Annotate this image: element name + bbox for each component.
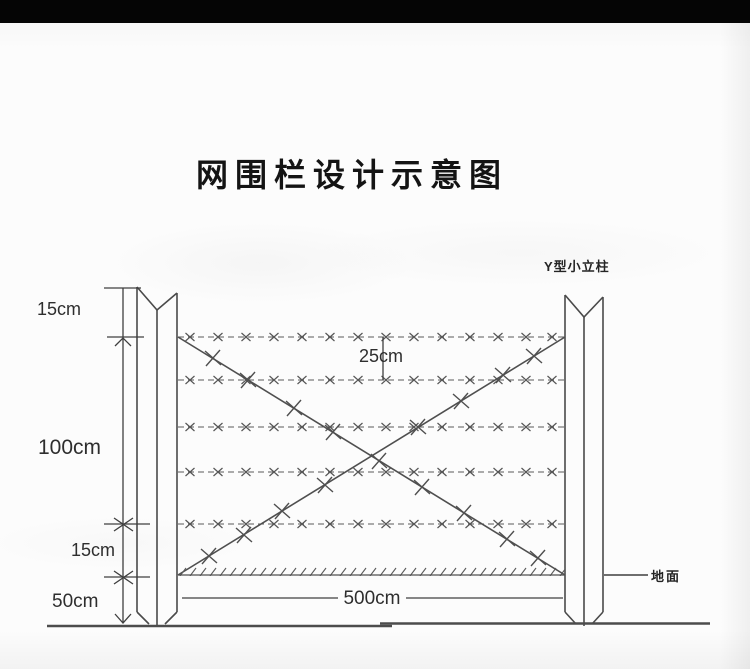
dim-label-wire-gap: 25cm [359,346,403,367]
ground-surface-line [178,567,648,576]
right-post-y-top [565,295,603,317]
post-type-label: Y型小立柱 [544,256,610,275]
barbed-wire-row-1 [178,333,565,341]
fence-diagram [0,0,750,669]
left-y-post [137,287,177,626]
right-y-post [565,295,603,626]
barbed-wire-row-3 [178,423,565,431]
dim-label-buried-depth: 50cm [52,591,98,613]
baseline [47,624,710,627]
dim-label-bottom-gap: 15cm [71,540,115,561]
ground-label: 地面 [651,566,681,585]
dim-label-fence-height: 100cm [38,436,101,460]
barbed-wire-row-5 [178,520,565,528]
left-post-y-top [137,287,177,310]
barbed-wire-row-4 [178,468,565,476]
barbed-wire-row-2 [178,376,565,384]
left-dimension-chain [104,288,150,623]
scanned-page: 网围栏设计示意图 15cm 25cm 100cm 15cm 50cm 500cm… [0,0,750,669]
dim-label-top-offset: 15cm [37,299,81,320]
dim-label-span: 500cm [343,588,400,610]
page-title: 网围栏设计示意图 [196,150,508,196]
